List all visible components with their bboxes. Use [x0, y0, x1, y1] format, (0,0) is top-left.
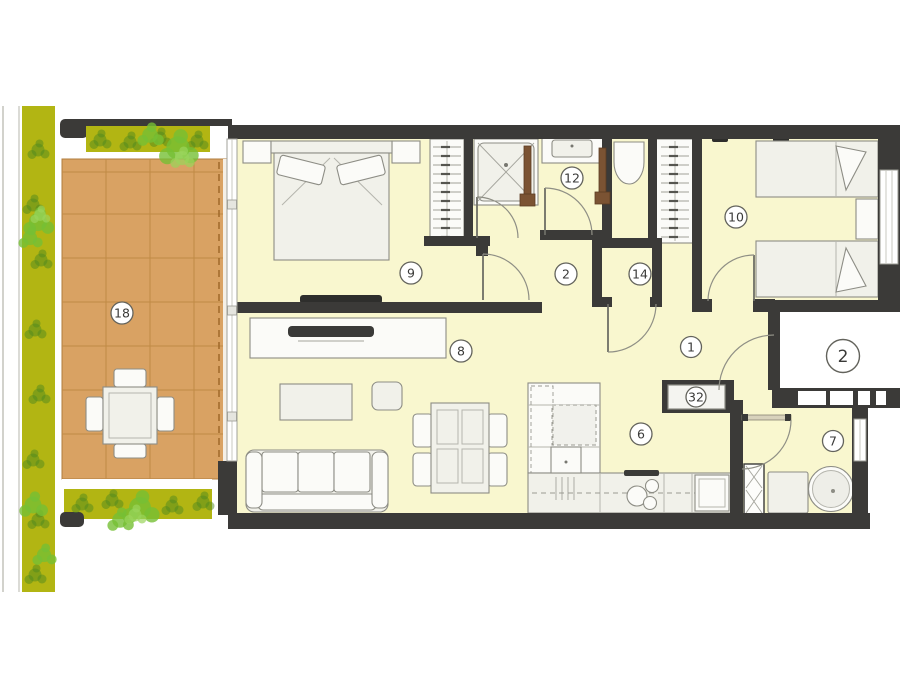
svg-text:10: 10 [728, 210, 744, 225]
outdoor-table [103, 387, 157, 444]
room-label-kitchen: 6 [630, 423, 652, 445]
nightstand [856, 199, 878, 239]
room-label-entrance-hall: 1 [681, 337, 702, 358]
dining-table [431, 403, 489, 493]
utility-room [744, 464, 854, 515]
terrace-sliding-door [227, 139, 237, 461]
nightstand [243, 141, 271, 163]
room-label-main-bedroom: 9 [400, 262, 422, 284]
svg-text:12: 12 [564, 171, 580, 186]
unit-number-label: 2 [827, 340, 860, 373]
bedroom-window [880, 170, 898, 264]
sofa [246, 450, 388, 512]
svg-text:14: 14 [632, 267, 648, 282]
dining-chair [413, 414, 433, 447]
garden-left-path [3, 106, 19, 592]
tv-sideboard [250, 318, 446, 358]
fridge [552, 405, 596, 445]
room-label-utility: 7 [823, 431, 844, 452]
outdoor-chair [114, 444, 146, 458]
room-label-cabinet: 32 [686, 387, 706, 407]
single-bed [756, 141, 878, 197]
outdoor-chair [86, 397, 103, 431]
dining-chair [487, 414, 507, 447]
nightstand [392, 141, 420, 163]
svg-text:8: 8 [457, 344, 465, 359]
svg-text:2: 2 [838, 347, 849, 367]
single-bed [756, 241, 878, 297]
bed-headboard [271, 141, 392, 153]
svg-text:9: 9 [407, 266, 415, 281]
svg-text:2: 2 [562, 267, 570, 282]
dishwasher [695, 475, 729, 511]
kitchen-sink [551, 447, 581, 473]
svg-text:6: 6 [637, 427, 645, 442]
washing-machine [768, 472, 808, 513]
toilet [614, 142, 644, 184]
dining-chair [487, 453, 507, 486]
utility-window [854, 419, 866, 461]
room-label-terrace: 18 [111, 302, 133, 324]
outdoor-chair [114, 369, 146, 387]
room-label-bathroom: 12 [561, 167, 583, 189]
floor-plan-drawing: 18 9 12 2 14 10 1 8 6 7 32 2 [0, 0, 900, 675]
room-label-14: 14 [629, 263, 651, 285]
svg-text:32: 32 [688, 390, 704, 405]
svg-text:1: 1 [687, 340, 695, 355]
room-label-hallway: 2 [555, 263, 577, 285]
room-label-living-room: 8 [450, 340, 472, 362]
floor-plan: 18 9 12 2 14 10 1 8 6 7 32 2 [0, 0, 900, 675]
terrace-corner-wall [60, 512, 84, 527]
room-label-second-bedroom: 10 [725, 206, 747, 228]
tv [288, 326, 374, 337]
coffee-table [280, 384, 352, 420]
dining-chair [413, 453, 433, 486]
pouf [372, 382, 402, 410]
terrace [60, 119, 232, 527]
svg-text:7: 7 [829, 434, 837, 449]
svg-text:18: 18 [114, 306, 130, 321]
outdoor-chair [157, 397, 174, 431]
boiler-cabinet [744, 464, 764, 515]
